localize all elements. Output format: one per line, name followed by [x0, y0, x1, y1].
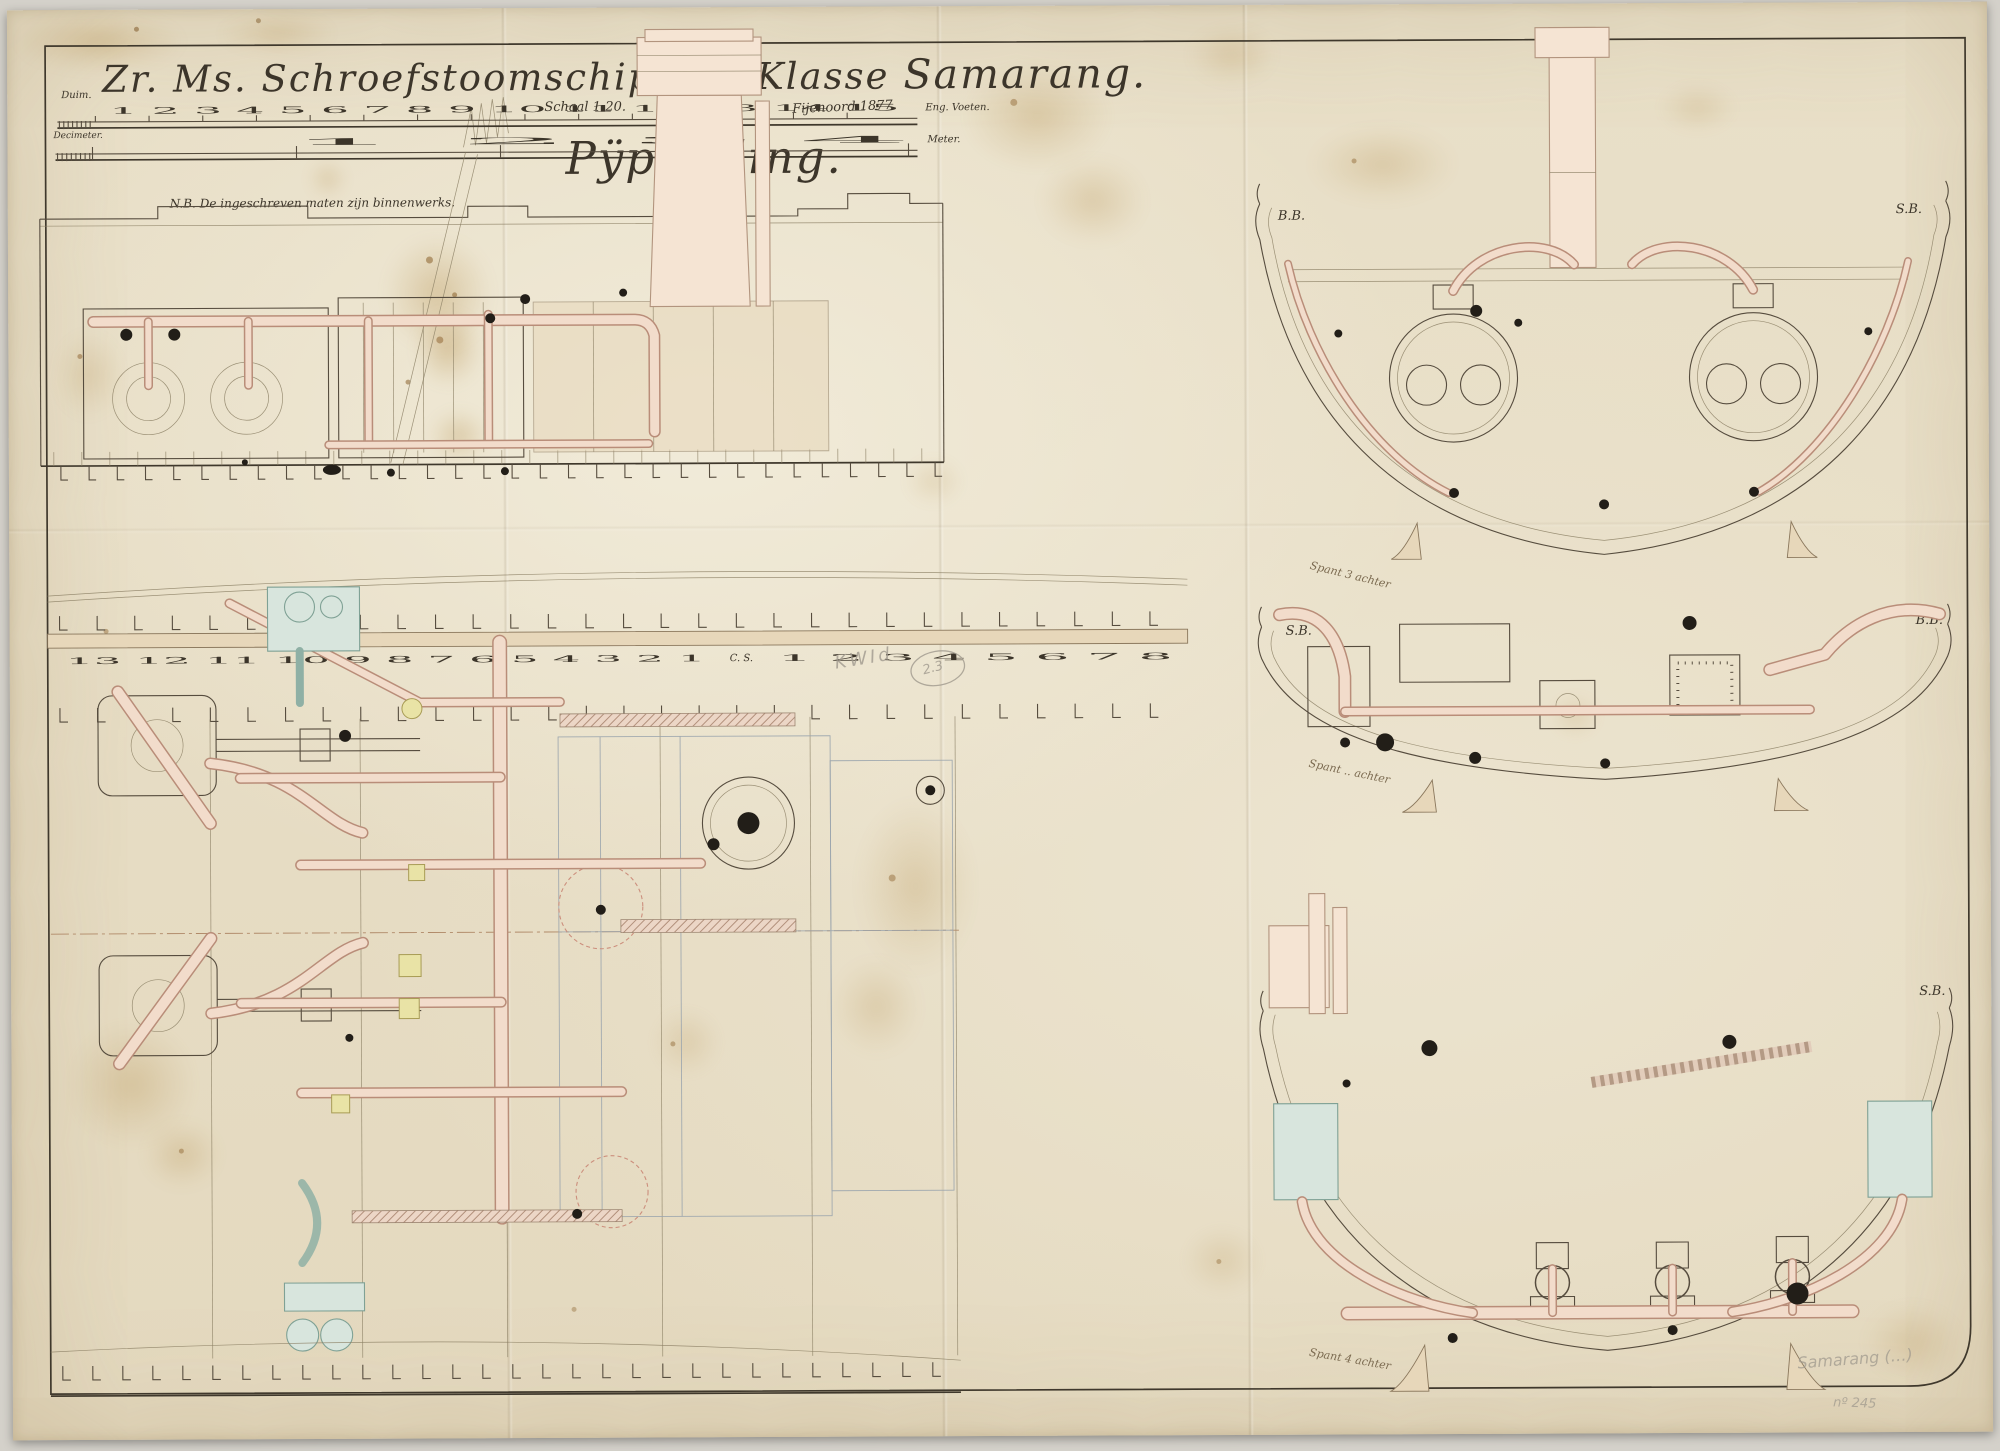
kwid-text: KWId	[833, 644, 894, 674]
pencil-stamp-kwid: KWId 2.3	[833, 643, 967, 690]
shaft-flange-circle	[702, 777, 794, 869]
title-text: Zr. Ms. Schroefstoomschip 4de KlasseSama…	[101, 49, 1147, 102]
meter-unit: Meter.	[926, 134, 960, 145]
duim-label: Duim.	[60, 90, 91, 101]
pencil-inventory-number: nº 245	[1833, 1395, 1877, 1411]
technical-drawing: Zr. Ms. Schroefstoomschip 4de KlasseSama…	[7, 2, 1993, 1441]
plan-view	[47, 584, 961, 1396]
boiler-fronts	[1389, 283, 1818, 442]
section-caption: Spant 4 achter	[1308, 1346, 1392, 1373]
section-label-starboard: S.B.	[1919, 984, 1945, 999]
duim-numbers: 1 2 3 4 5 6 7 8 9 10 11 12 13 14 15	[109, 103, 900, 116]
duim-unit: Eng. Voeten.	[924, 102, 989, 113]
cross-section-aft: B.B. S.B.	[1255, 26, 1952, 592]
cross-section-engine-room: S.B. B.B.	[1258, 604, 1952, 813]
decimeter-label: Decimeter.	[52, 131, 103, 141]
pencil-corner-notes: Samarang (…) nº 245	[1797, 1345, 1914, 1412]
cross-section-forward: B.B. S.B.	[1259, 891, 1954, 1392]
section-funnel	[1535, 27, 1610, 267]
section-valve-dots	[1334, 303, 1873, 510]
section-label-starboard: S.B.	[1896, 202, 1922, 217]
section-label-port: B.B.	[1277, 209, 1305, 224]
plan-valve-dots	[339, 728, 721, 1220]
steam-piping-plan	[117, 601, 702, 1219]
station-numbers-left: 13 12 11 10 9 8 7 6 5 4 3 2 1	[66, 654, 706, 667]
nb-note-text: N.B. De ingeschreven maten zijn binnenwe…	[169, 195, 455, 210]
drawing-sheet: Zr. Ms. Schroefstoomschip 4de KlasseSama…	[7, 2, 1993, 1441]
scanned-drawing-photo: Zr. Ms. Schroefstoomschip 4de KlasseSama…	[0, 0, 2000, 1451]
section-caption: Spant .. achter	[1308, 757, 1392, 787]
station-center-mark: C. S.	[730, 653, 753, 664]
section-label-starboard: S.B.	[1286, 624, 1312, 639]
yellow-fittings	[330, 699, 426, 1113]
sheet-border	[45, 38, 1971, 1394]
pencil-ship-name: Samarang (…)	[1797, 1345, 1914, 1373]
section-caption: Spant 3 achter	[1309, 559, 1393, 591]
station-ruler: 13 12 11 10 9 8 7 6 5 4 3 2 1 C. S. 1 2 …	[47, 570, 1188, 723]
boiler-side	[83, 308, 329, 459]
section-valve-dots	[1340, 616, 1698, 770]
